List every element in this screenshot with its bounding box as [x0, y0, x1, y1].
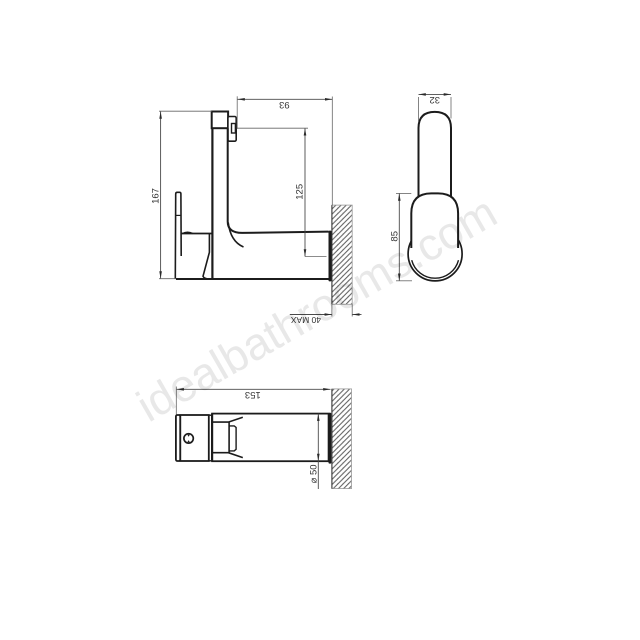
svg-text:⌀ 50: ⌀ 50	[309, 464, 320, 483]
svg-text:93: 93	[279, 99, 290, 110]
svg-text:32: 32	[429, 94, 440, 105]
svg-text:153: 153	[245, 389, 261, 400]
svg-text:125: 125	[294, 184, 305, 200]
svg-text:167: 167	[151, 188, 162, 204]
